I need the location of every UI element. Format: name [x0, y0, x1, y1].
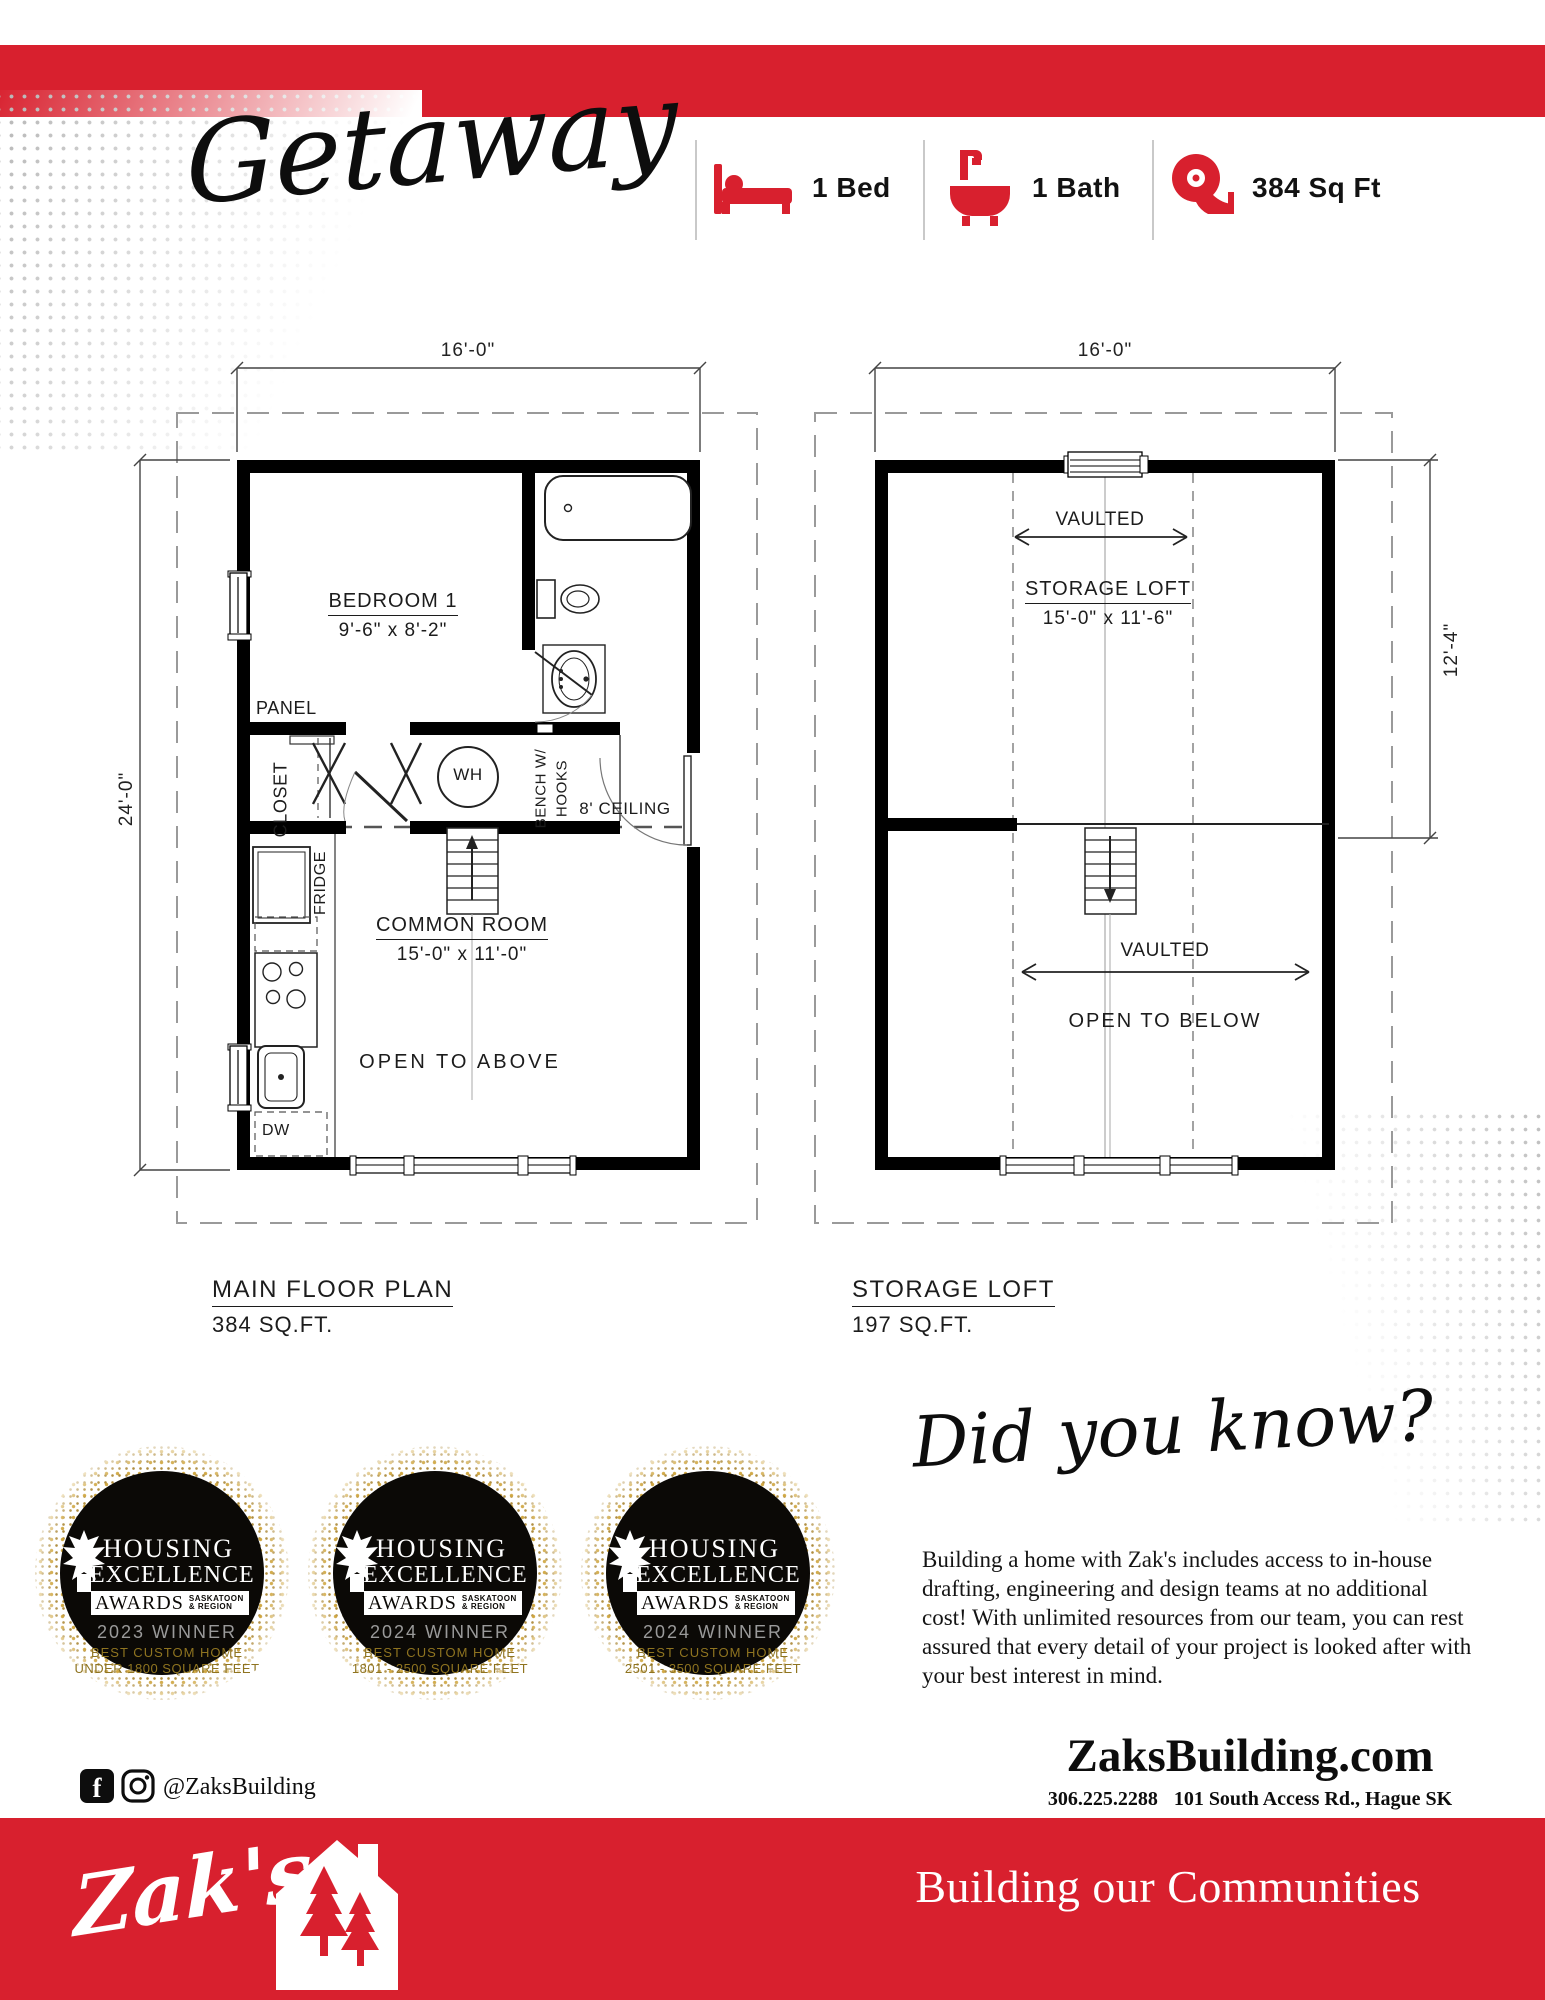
awards-region-line2: & REGION [462, 1603, 517, 1611]
fridge [253, 847, 310, 923]
main-floor-caption: MAIN FLOOR PLAN [212, 1276, 453, 1307]
bath-count-label: 1 Bath [1032, 172, 1121, 204]
wall-niche [537, 724, 553, 733]
main-floor-plan-drawing [100, 340, 780, 1350]
ceiling-height-label: 8' CEILING [555, 799, 695, 819]
bathtub [545, 476, 691, 540]
main-floor-caption-title: MAIN FLOOR PLAN [212, 1276, 453, 1307]
spec-divider [695, 140, 697, 240]
instagram-icon [121, 1769, 155, 1803]
storage-loft-plan-drawing [780, 340, 1460, 1350]
hooks-label: HOOKS [554, 739, 571, 839]
badge-winner-year: 2024 WINNER [340, 1622, 540, 1643]
bench-label: BENCH W/ [533, 739, 550, 839]
main-floor-caption-area: 384 SQ.FT. [212, 1312, 333, 1338]
tape-measure-icon [1166, 150, 1238, 224]
website-url: ZaksBuilding.com [1015, 1729, 1485, 1783]
common-room-label: COMMON ROOM 15'-0" x 11'-0" [362, 914, 562, 966]
loft-wall [881, 818, 1017, 831]
flyer-page: Getaway 1 Bed 1 Bath 384 [0, 0, 1545, 2000]
contact-line: 306.225.2288 101 South Access Rd., Hague… [1015, 1788, 1485, 1811]
awards-region-line2: & REGION [735, 1603, 790, 1611]
awards-region: SASKATOON & REGION [735, 1595, 790, 1611]
footer-tagline: Building our Communities [868, 1860, 1468, 1913]
awards-word: AWARDS [641, 1592, 730, 1615]
awards-box: AWARDS SASKATOON & REGION [91, 1591, 249, 1615]
electrical-panel [290, 736, 334, 744]
award-org-line2: EXCELLENCE [90, 1562, 255, 1589]
toilet [537, 580, 599, 618]
house-trees-icon [262, 1832, 412, 1990]
awards-word: AWARDS [368, 1592, 457, 1615]
badge-size-range: 2501 - 3500 SQUARE FEET [613, 1661, 813, 1676]
loft-window [1064, 452, 1148, 477]
dishwasher-label: DW [262, 1122, 290, 1140]
storage-loft-label: STORAGE LOFT 15'-0" x 11'-6" [1008, 578, 1208, 630]
vaulted-top-label: VAULTED [1000, 509, 1200, 531]
storage-loft-caption-title: STORAGE LOFT [852, 1276, 1055, 1307]
bedroom-label: BEDROOM 1 9'-6" x 8'-2" [293, 590, 493, 642]
bed-count-label: 1 Bed [812, 172, 891, 204]
badge-winner-year: 2024 WINNER [613, 1622, 813, 1643]
award-org-line1: HOUSING [103, 1534, 234, 1564]
storage-loft-caption-area: 197 SQ.FT. [852, 1312, 973, 1338]
award-org-line2: EXCELLENCE [636, 1562, 801, 1589]
bifold-doors [313, 743, 421, 804]
water-heater-label: WH [438, 765, 498, 785]
storage-loft-name: STORAGE LOFT [1025, 578, 1191, 604]
badge-winner-year: 2023 WINNER [67, 1622, 267, 1643]
kitchen-sink [258, 1046, 304, 1108]
badge-size-range: 1801 - 2500 SQUARE FEET [340, 1661, 540, 1676]
vaulted-bottom-label: VAULTED [1065, 940, 1265, 962]
vaulted-arrow-bottom [1022, 964, 1309, 980]
dimension-width-loft: 16'-0" [1005, 340, 1205, 362]
street-address: 101 South Access Rd., Hague SK [1174, 1788, 1452, 1811]
loft-bottom-window [1000, 1156, 1238, 1175]
did-you-know-body: Building a home with Zak's includes acce… [922, 1545, 1474, 1690]
award-org-line1: HOUSING [649, 1534, 780, 1564]
closet-label: CLOSET [271, 750, 292, 850]
award-badge-2023: HOUSING EXCELLENCE AWARDS SASKATOON & RE… [27, 1438, 297, 1708]
bath-icon [948, 146, 1012, 230]
awards-word: AWARDS [95, 1592, 184, 1615]
panel-label: PANEL [256, 698, 317, 719]
badge-size-range: UNDER 1800 SQUARE FEET [67, 1661, 267, 1676]
badge-category: BEST CUSTOM HOME [340, 1645, 540, 1660]
social-handle: @ZaksBuilding [163, 1774, 316, 1801]
bedroom-door [344, 772, 407, 821]
award-badge-2024-a: HOUSING EXCELLENCE AWARDS SASKATOON & RE… [300, 1438, 570, 1708]
award-org-line1: HOUSING [376, 1534, 507, 1564]
facebook-icon: f [80, 1769, 114, 1803]
phone-number: 306.225.2288 [1048, 1788, 1158, 1811]
open-to-above-label: OPEN TO ABOVE [340, 1051, 580, 1074]
storage-loft-dims: 15'-0" x 11'-6" [1008, 608, 1208, 630]
common-room-name: COMMON ROOM [376, 914, 548, 940]
area-label: 384 Sq Ft [1252, 172, 1381, 204]
closet-rod [318, 738, 330, 818]
bed-icon [712, 158, 794, 218]
did-you-know-heading: Did you know? [910, 1374, 1435, 1483]
spec-divider [923, 140, 925, 240]
bedroom-dims: 9'-6" x 8'-2" [293, 620, 493, 642]
bedroom-name: BEDROOM 1 [328, 590, 457, 616]
fridge-label: FRIDGE [312, 833, 330, 933]
open-to-below-label: OPEN TO BELOW [1045, 1010, 1285, 1033]
spec-divider [1152, 140, 1154, 240]
award-org-line2: EXCELLENCE [363, 1562, 528, 1589]
stairs-down [1085, 828, 1136, 1157]
vaulted-arrow-top [1015, 529, 1187, 545]
cooktop [255, 953, 317, 1047]
storage-loft-caption: STORAGE LOFT [852, 1276, 1055, 1307]
awards-box: AWARDS SASKATOON & REGION [637, 1591, 795, 1615]
dimension-height-loft: 12'-4" [1441, 600, 1463, 700]
common-room-dims: 15'-0" x 11'-0" [362, 944, 562, 966]
badge-category: BEST CUSTOM HOME [67, 1645, 267, 1660]
bathroom-sink [543, 645, 605, 713]
awards-box: AWARDS SASKATOON & REGION [364, 1591, 522, 1615]
award-badge-2024-b: HOUSING EXCELLENCE AWARDS SASKATOON & RE… [573, 1438, 843, 1708]
awards-region: SASKATOON & REGION [462, 1595, 517, 1611]
dimension-width-main: 16'-0" [368, 340, 568, 362]
awards-region-line2: & REGION [189, 1603, 244, 1611]
dimension-height-main: 24'-0" [116, 749, 138, 849]
badge-category: BEST CUSTOM HOME [613, 1645, 813, 1660]
awards-region: SASKATOON & REGION [189, 1595, 244, 1611]
